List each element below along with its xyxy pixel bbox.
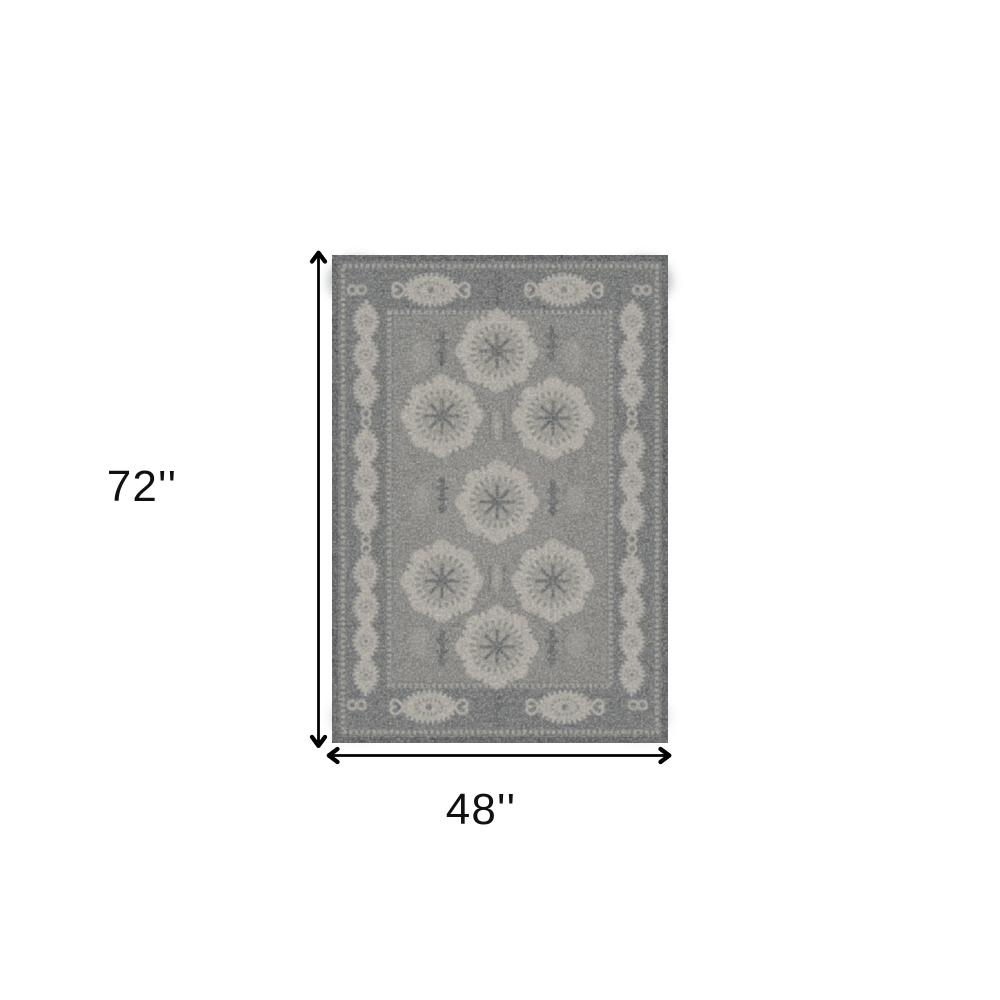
svg-text:48'': 48'' bbox=[446, 785, 517, 834]
svg-text:72'': 72'' bbox=[107, 462, 178, 511]
